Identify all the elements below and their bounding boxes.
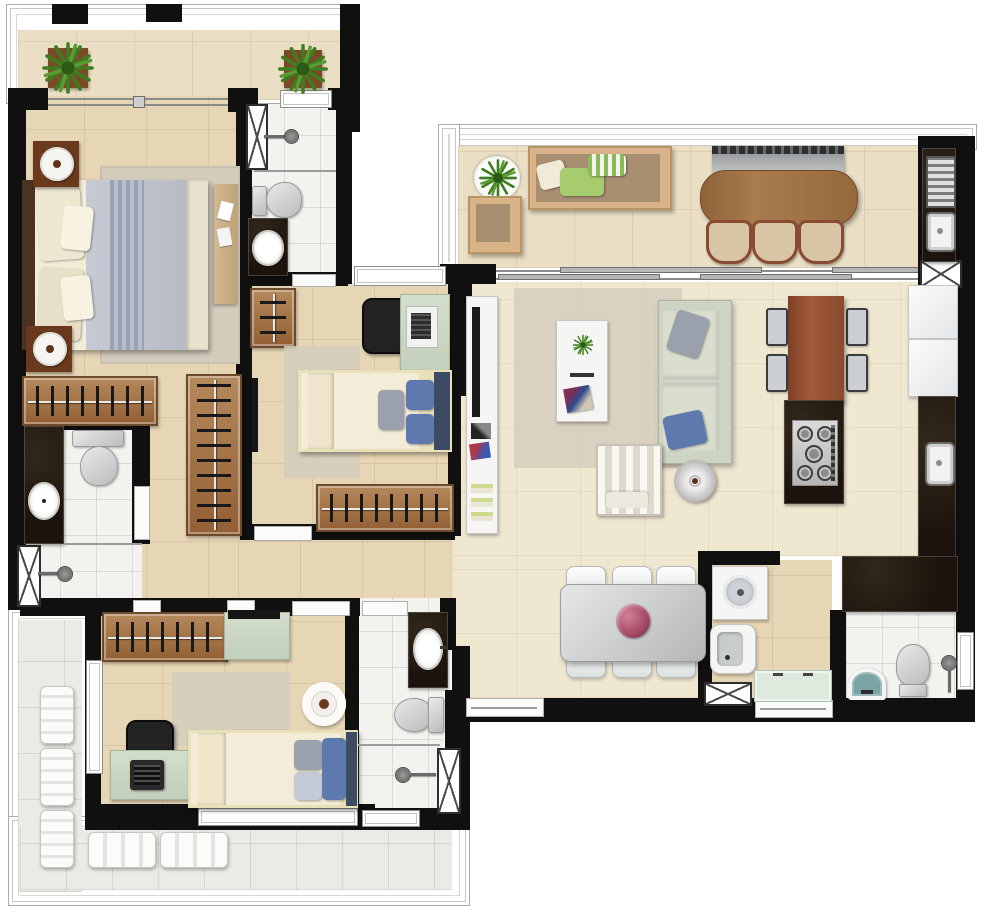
tv-console [466, 296, 498, 534]
kitchen-chair [766, 308, 788, 346]
window-bedroom3-bottom [198, 808, 358, 826]
shaft-gourmet-balcony [920, 260, 962, 288]
kitchen-sink [925, 442, 955, 486]
cabinet-run [754, 670, 832, 702]
headboard [22, 180, 35, 350]
table-lamp [40, 147, 74, 181]
potted-plant-icon [476, 156, 520, 200]
toilet-tank [428, 697, 444, 733]
pillow [406, 414, 434, 444]
shaft-master-bathroom [17, 545, 41, 607]
window-bathroom3-bottom [362, 810, 420, 827]
cooktop [792, 420, 838, 486]
magazines [563, 385, 593, 413]
lounge-chair [40, 686, 74, 744]
wardrobe-rack-horizontal [22, 376, 158, 426]
lounge-chair [40, 810, 74, 868]
pillow [588, 154, 626, 176]
service-entry-door [755, 700, 833, 718]
kitchen-chair [846, 354, 868, 392]
double-bed [22, 180, 208, 350]
potted-plant-icon [38, 38, 98, 98]
decor-magazine [469, 442, 491, 461]
vanity-sink [252, 230, 284, 266]
pillow [294, 772, 322, 800]
stool [752, 220, 798, 264]
wardrobe-rack [316, 484, 454, 532]
shower-head-icon [285, 130, 298, 143]
sofa [658, 300, 732, 464]
pillow [378, 390, 404, 430]
throw-blanket [110, 180, 144, 350]
stool [798, 220, 844, 264]
wardrobe-rack-vertical [186, 374, 242, 536]
shower-head-icon [942, 656, 956, 670]
flower-centerpiece [616, 604, 650, 638]
laundry-sink [710, 624, 756, 674]
balcony-parapet-gourmet-left [438, 124, 460, 272]
wall-laundry-top [698, 551, 780, 565]
decor-books [471, 483, 493, 521]
wardrobe-rack [102, 612, 228, 662]
pillar-top-1 [52, 4, 88, 24]
bench-seat [160, 832, 228, 868]
wall-tv [252, 378, 258, 452]
tv [472, 307, 480, 417]
pillow [294, 740, 322, 770]
shaft-laundry [704, 682, 752, 706]
bench-seat [88, 832, 156, 868]
single-bed [188, 730, 358, 808]
blanket [434, 372, 450, 450]
faucet [440, 646, 448, 649]
window-bedroom3-left [86, 660, 103, 774]
outdoor-armchair [468, 196, 522, 254]
closet-rack [250, 288, 296, 348]
bar-table [700, 170, 858, 226]
toilet-tank [72, 430, 124, 447]
plant-icon [571, 333, 595, 357]
laptop [130, 760, 164, 790]
potted-plant-icon [274, 40, 332, 98]
coffee-table [556, 320, 608, 422]
laptop [406, 306, 438, 348]
door-bathroom-2 [292, 274, 336, 287]
dresser [214, 184, 238, 304]
pillar-top-2 [146, 4, 182, 22]
wash-basin [848, 668, 886, 700]
table-lamp [33, 332, 67, 366]
counter-grill-grate [926, 156, 956, 208]
shower-divider [358, 744, 440, 746]
wall-bathroom2-right [336, 98, 352, 284]
door-bedroom-2 [254, 526, 312, 541]
door-master-bathroom [134, 486, 150, 540]
stool [706, 220, 752, 264]
shower-divider [254, 170, 336, 172]
shower-arm [410, 773, 436, 776]
shower-divider [64, 543, 142, 545]
kitchen-table [788, 296, 844, 402]
floor-plan [0, 0, 1000, 907]
door-bedroom-3 [292, 601, 350, 616]
pillow [322, 738, 346, 800]
toilet-bowl [80, 446, 118, 486]
shower-head-icon [58, 567, 72, 581]
sideboard [224, 612, 290, 660]
decor-art [471, 423, 491, 439]
refrigerator [908, 285, 958, 339]
window-bedroom2-top [354, 266, 446, 286]
duvet-fold [186, 180, 208, 350]
striped-armchair [596, 444, 662, 516]
pillow [60, 205, 94, 252]
toilet-tank [899, 684, 927, 697]
outdoor-sofa [528, 146, 672, 210]
blanket [346, 732, 357, 806]
wall-service-bath-left [830, 610, 846, 702]
single-bed [298, 370, 452, 452]
shaft-bathroom-3 [437, 748, 461, 814]
toilet-bowl [266, 182, 302, 218]
sheet-fold [198, 733, 226, 805]
shower-arm [948, 670, 951, 692]
vanity-sink [413, 628, 443, 670]
toilet-bowl [896, 644, 930, 686]
toilet-bowl [394, 698, 432, 732]
counter-corner [842, 556, 958, 612]
round-side-table [674, 460, 716, 502]
wall-living-nw-chunk [440, 264, 496, 284]
shower-head-icon [396, 768, 410, 782]
round-table [302, 682, 346, 726]
sideboard-tv [228, 610, 280, 619]
balcony-bottom-floor [20, 828, 452, 890]
door-bathroom-3 [362, 601, 408, 616]
window-service-bathroom [957, 632, 974, 690]
lounge-chair [40, 748, 74, 806]
faucet [42, 499, 46, 503]
appliance [908, 339, 958, 397]
main-entry-door [466, 698, 544, 717]
counter-sink [926, 212, 956, 252]
toilet-tank [252, 186, 267, 216]
washing-machine [712, 566, 768, 620]
kitchen-chair [766, 354, 788, 392]
kitchen-chair [846, 308, 868, 346]
sheet-fold [308, 373, 334, 449]
pillow [406, 380, 434, 410]
remote [570, 373, 594, 377]
wall-outer-right [956, 136, 975, 704]
pillow [60, 275, 94, 322]
